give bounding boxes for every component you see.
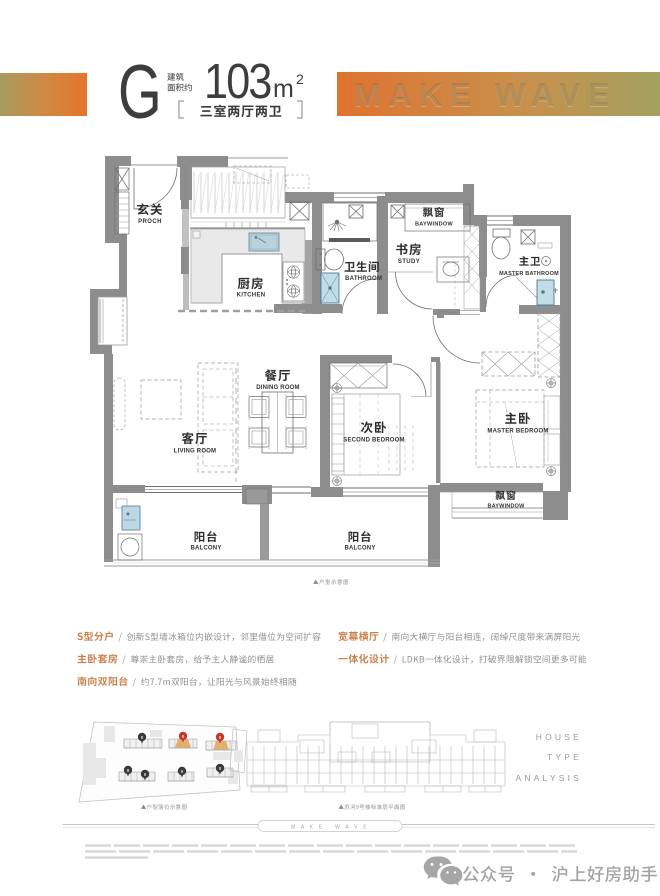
svg-text:BAYWINDOW: BAYWINDOW — [415, 222, 453, 228]
svg-text:TYPE: TYPE — [547, 752, 582, 762]
svg-text:BAYWINDOW: BAYWINDOW — [487, 504, 525, 510]
svg-text:M A K E W A V E: M A K E W A V E — [291, 825, 369, 831]
svg-text:BALCONY: BALCONY — [344, 546, 375, 552]
svg-text:PROCH: PROCH — [138, 219, 162, 225]
svg-text:MASTER BATHROOM: MASTER BATHROOM — [499, 271, 559, 277]
svg-text:LIVING ROOM: LIVING ROOM — [174, 449, 217, 455]
svg-text:STUDY: STUDY — [398, 259, 420, 265]
svg-text:m: m — [273, 75, 294, 103]
svg-text:ANALYSIS: ANALYSIS — [515, 773, 582, 783]
svg-text:MASTER BEDROOM: MASTER BEDROOM — [487, 429, 548, 435]
svg-text:MAKE WAVE: MAKE WAVE — [354, 77, 617, 113]
svg-text:DINING ROOM: DINING ROOM — [256, 385, 300, 391]
svg-text:KITCHEN: KITCHEN — [237, 293, 266, 299]
svg-text:HOUSE: HOUSE — [536, 732, 582, 742]
svg-text:G: G — [118, 50, 162, 135]
svg-text:BATHROOM: BATHROOM — [345, 276, 382, 282]
svg-text:2: 2 — [296, 71, 304, 87]
svg-text:BALCONY: BALCONY — [190, 546, 221, 552]
svg-text:SECOND BEDROOM: SECOND BEDROOM — [343, 438, 404, 444]
svg-text:103: 103 — [204, 53, 271, 108]
